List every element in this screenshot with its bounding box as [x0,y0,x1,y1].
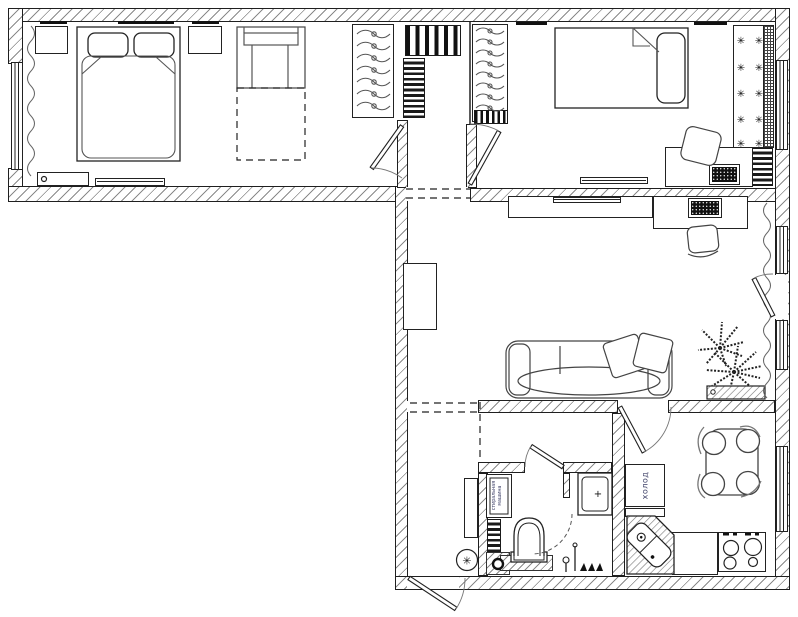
window-bedroom1 [11,62,23,170]
radiator-grid [763,25,774,148]
wall-left-upper [8,8,23,64]
wall-lamp-icon [192,21,219,24]
wardrobe-bedroom3 [472,24,508,122]
rug-bedroom1 [95,178,165,186]
window-living-lower [776,320,788,370]
opening-hall-lower [407,401,478,412]
wall-bath-top-right [563,462,612,473]
sofa [506,332,674,398]
window-bedroom3 [776,60,788,150]
floor-hatch-step [500,555,553,571]
double-bed [77,27,180,161]
wall-livingroom-left [395,186,408,590]
wardrobe-middle [352,24,394,118]
nightstand-right [188,26,222,54]
tv-icon [553,197,621,203]
cabinet-living [403,263,437,330]
keyboard-icon [709,164,740,185]
desk-chair-living [687,225,720,257]
wall-lamp-icon [516,22,547,25]
single-bed [555,28,688,108]
shower-tray: + [578,473,612,515]
wall-kitchen-left [612,413,625,576]
curtain-living [764,203,771,398]
wall-divider-left [478,400,618,413]
closet-shelf-top [405,25,461,56]
opening-hall-living [406,187,468,201]
wall-lamp-icon [694,22,727,25]
wall-leftwing-bottom [8,186,400,202]
shelf-block-bedroom3 [474,110,508,124]
bath-accessories [563,543,603,572]
wall-hall-left [397,120,408,188]
wall-top [8,8,790,22]
fridge-shelf [625,508,665,517]
window-kitchen [776,446,788,532]
wall-lamp-icon [40,21,67,24]
wall-hall-right [466,124,477,188]
wall-bath-top-left [478,462,525,473]
shelf-bedroom3 [752,148,773,186]
keyboard-icon [688,198,722,218]
window-living-upper [776,226,788,274]
stove [718,532,766,572]
shower-swing-arc [532,514,572,554]
nightstand-left [35,26,68,54]
svg-text:✳: ✳ [462,555,471,568]
wall-divider-right [668,400,775,413]
shelf-bathroom [487,519,501,552]
corner-sink [624,516,674,574]
low-bench [37,172,89,186]
plant-icon [698,322,762,390]
opening-balcony-door [775,275,788,319]
floor-plan: ✳✳ ✳✳ ✳✳ ✳✳ ✳✳ [0,0,798,617]
washing-machine-label: стиральная машина [484,474,512,518]
dining-set [698,426,761,498]
rug-bedroom3 [580,177,648,184]
curtain-bedroom1 [28,26,35,176]
headboard-shelf [118,21,174,24]
svg-text:+: + [594,489,602,500]
decor-panel [733,25,764,148]
kitchen-door [618,406,671,453]
fridge-label: холод [625,464,665,507]
balcony-door [752,274,775,317]
kitchen-counter [672,532,718,575]
plant-pot [707,386,765,399]
bathroom-door [525,445,564,469]
opening-entry-door [407,577,459,589]
fan-icon: ✳ [457,550,478,571]
closet-shelf-side [403,58,425,118]
cabinet-hall [464,478,478,538]
fold-out-bed [237,27,305,160]
wall-bath-partition [563,473,570,498]
